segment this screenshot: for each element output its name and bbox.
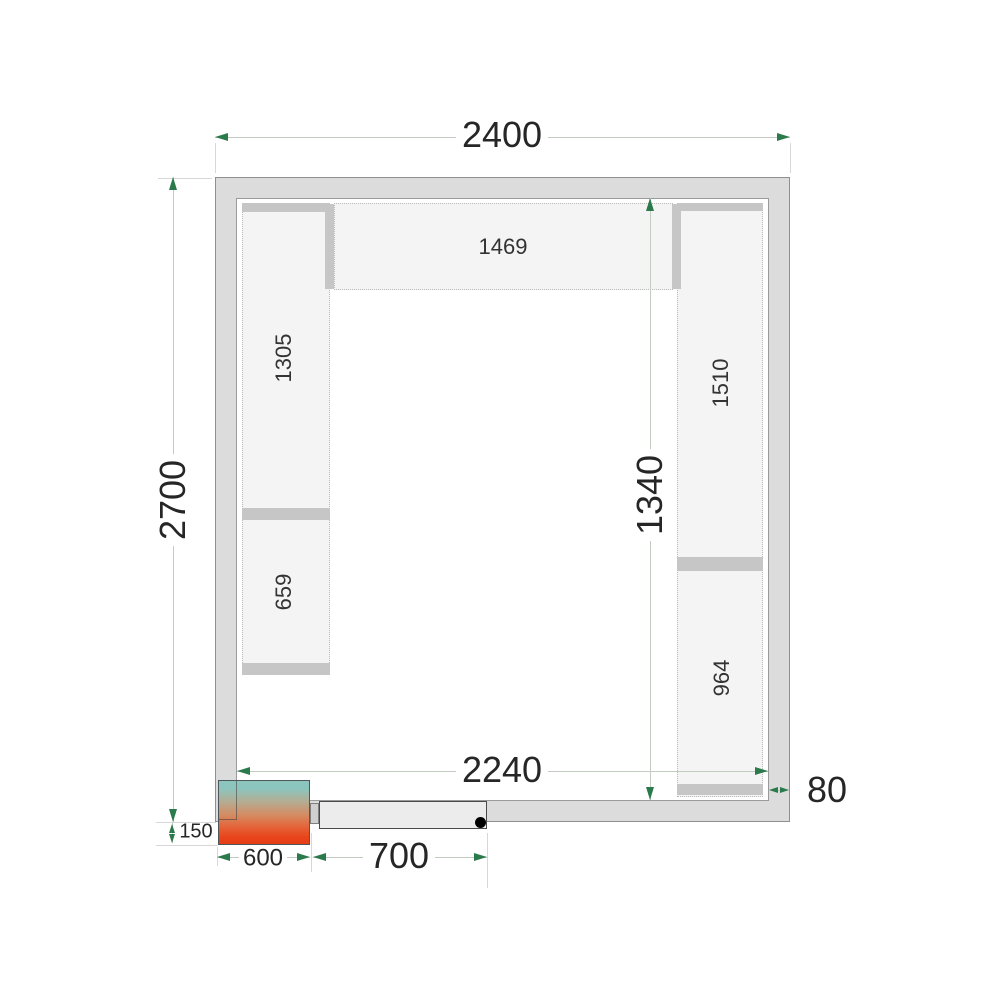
door-handle-dot [475,817,486,828]
door-panel [319,801,487,829]
dim-2700-arrow-bottom [169,809,177,822]
dim-1340-arrow-top [646,198,654,211]
dim-2700-ext-top [158,178,212,179]
shelf-left-top-bar [242,203,330,212]
dim-80-arrow-right [780,787,789,793]
shelf-label-left-lower: 659 [273,574,295,611]
cooling-unit [218,780,310,845]
dim-1340-arrow-bottom [646,787,654,800]
dim-2240-arrow-left [237,767,250,775]
dim-600-arrow-left [217,853,230,861]
dim-2400-arrow-left [215,133,228,141]
shelf-right-corner-post [672,204,681,289]
wall-seam-vertical [236,781,237,820]
shelf-right-top-bar [677,203,763,211]
shelf-left-divider-bar [242,508,330,520]
dim-700-ext-left [311,833,312,872]
dim-2400-ext-right [790,143,791,173]
dim-2400-arrow-right [777,133,790,141]
wall-seam-horizontal [219,819,236,820]
dim-150-ext-bottom [156,845,218,846]
dim-2400-ext-left [215,143,216,173]
dim-label-overall-depth: 2700 [154,454,192,546]
shelf-right-bottom-bar [677,784,763,795]
dim-80-arrow-left [769,787,778,793]
shelf-label-right-lower: 964 [711,660,733,697]
dim-2700-arrow-top [169,177,177,190]
shelf-label-right-upper: 1510 [710,359,732,408]
dim-700-arrow-left [313,853,326,861]
dim-label-wall-thickness: 80 [801,771,853,809]
dim-label-overall-width: 2400 [456,116,548,154]
dim-700-ext-right [487,833,488,888]
dim-label-interior-width: 2240 [456,751,548,789]
shelf-left-corner-post [325,204,334,289]
shelf-right-column [677,203,763,797]
shelf-right-divider-bar [677,557,763,571]
dim-150-arrow-bottom [169,834,175,843]
door-frame [310,803,319,824]
dim-label-interior-span: 1340 [631,449,669,541]
dim-150-arrow-top [169,824,175,833]
shelf-left-bottom-bar [242,663,330,675]
cold-room-floor-plan: 1469 1305 659 1510 964 2400 2700 1340 22… [0,0,1000,1000]
dim-label-door-width: 700 [363,837,435,875]
shelf-label-top: 1469 [479,236,528,258]
dim-label-unit-width: 600 [239,845,287,870]
dim-700-arrow-right [474,853,487,861]
shelf-label-left-upper: 1305 [273,334,295,383]
dim-600-arrow-right [297,853,310,861]
dim-label-unit-offset: 150 [176,822,215,843]
dim-2240-arrow-right [755,767,768,775]
